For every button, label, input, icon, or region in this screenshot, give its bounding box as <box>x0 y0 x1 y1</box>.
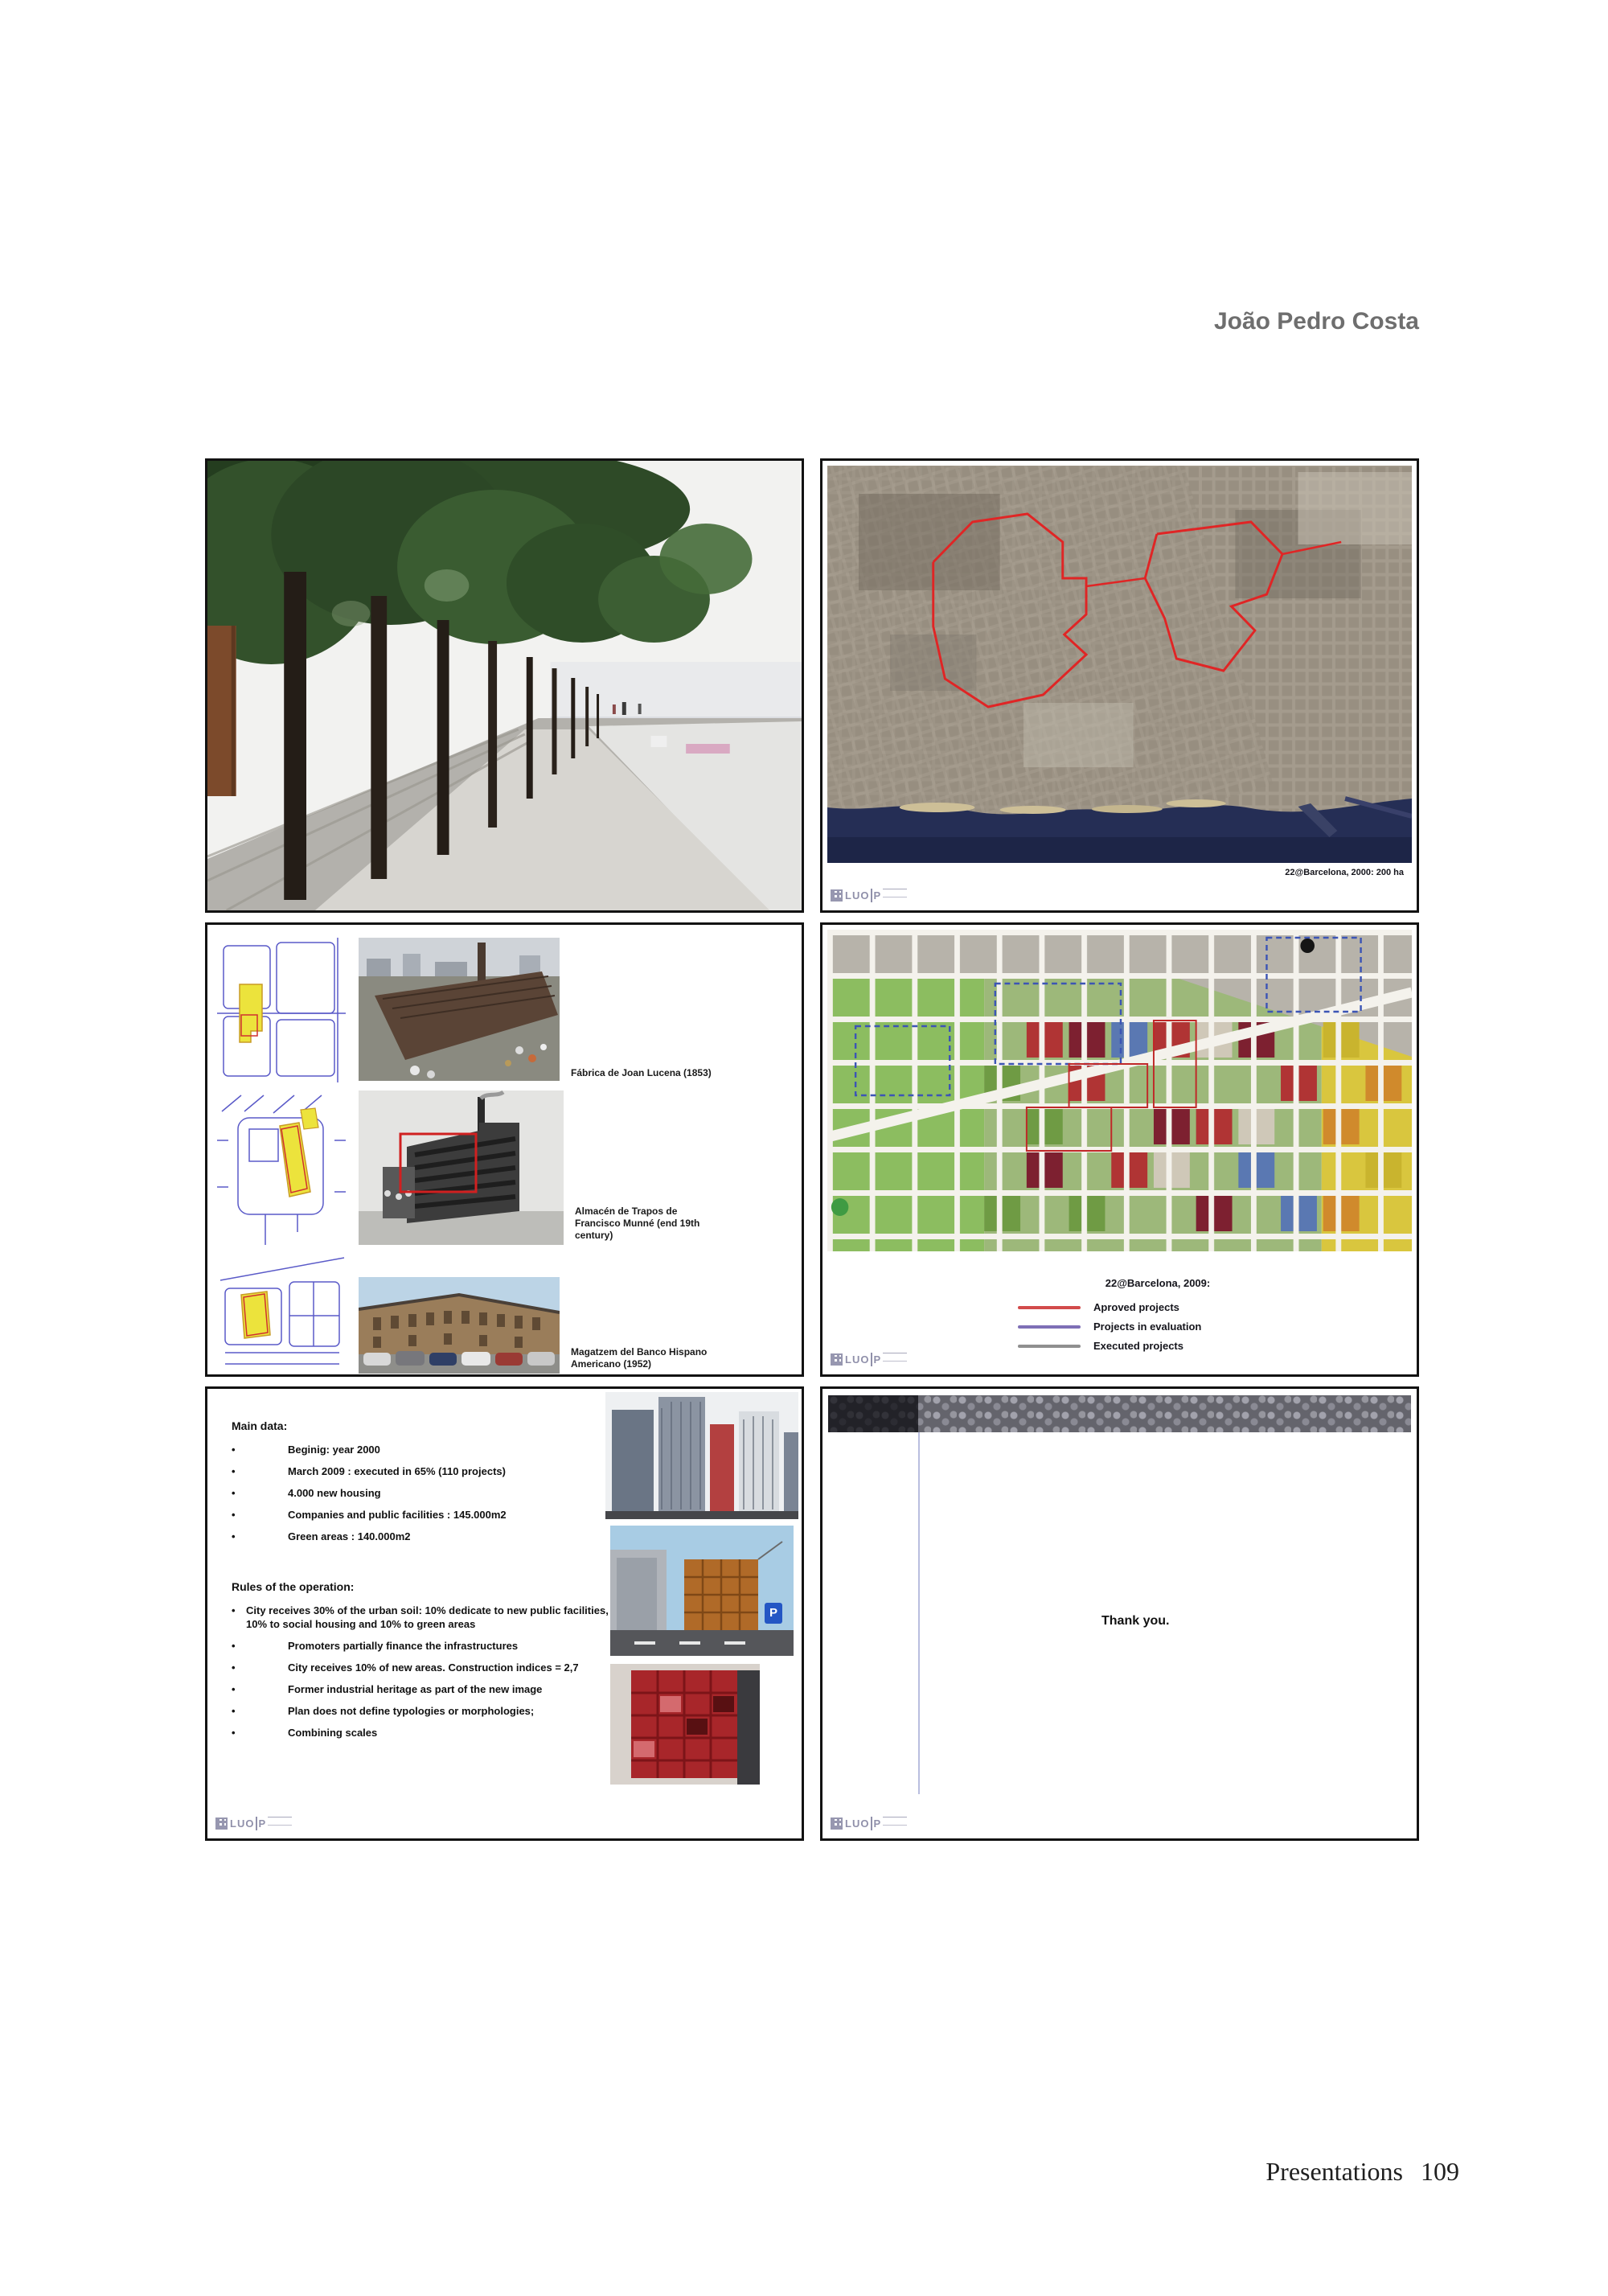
luop-logo-lines <box>883 1817 907 1826</box>
legend-swatch <box>1018 1325 1081 1329</box>
promenade-photo <box>207 461 802 910</box>
factory-photo <box>359 938 560 1082</box>
cobblestone-shadow <box>828 1395 918 1432</box>
luop-logo-suffix: P <box>873 889 881 902</box>
slide-satellite: 22@Barcelona, 2000: 200 ha LUO P <box>820 458 1419 913</box>
legend-item: Executed projects <box>1018 1340 1201 1352</box>
cadastral-map <box>217 1090 346 1245</box>
luop-logo-bar <box>256 1817 257 1830</box>
luop-logo-suffix: P <box>873 1353 881 1366</box>
heritage-row: Fábrica de Joan Lucena (1853) <box>217 938 792 1082</box>
street-photos: P <box>601 1389 802 1838</box>
legend-swatch <box>1018 1306 1081 1309</box>
red-facade-photo <box>610 1664 760 1785</box>
luop-logo-lines <box>883 1353 907 1362</box>
legend-item: Projects in evaluation <box>1018 1321 1201 1333</box>
luop-logo-icon <box>831 889 843 902</box>
luop-logo: LUO P <box>831 1817 907 1830</box>
bullet-item: • Beginig: year 2000 <box>232 1444 613 1457</box>
luop-logo-text: LUO <box>230 1817 254 1830</box>
slide-main-data: Main data: • Beginig: year 2000 • March … <box>205 1386 804 1841</box>
bullet-item: • City receives 10% of new areas. Constr… <box>232 1661 613 1675</box>
luop-logo-suffix: P <box>258 1817 266 1830</box>
luop-logo-lines <box>883 889 907 897</box>
slide-plan: 22@Barcelona, 2009: Aproved projects Pro… <box>820 922 1419 1377</box>
luop-logo-icon <box>831 1353 843 1366</box>
old-factory-photo <box>359 1090 564 1245</box>
bullet-item: • 4.000 new housing <box>232 1487 613 1501</box>
heritage-row: Magatzem del Banco Hispano Americano (19… <box>217 1253 792 1374</box>
footer-section-label: Presentations <box>1265 2157 1403 2186</box>
bullet-item: • Former industrial heritage as part of … <box>232 1683 613 1697</box>
luop-logo: LUO P <box>215 1817 292 1830</box>
bullet-item: • Companies and public facilities : 145.… <box>232 1509 613 1522</box>
main-data-text: Main data: • Beginig: year 2000 • March … <box>232 1389 613 1748</box>
divider-line <box>918 1432 920 1794</box>
cobblestone-photo <box>828 1395 1411 1432</box>
plan-legend: Aproved projects Projects in evaluation … <box>1018 1301 1201 1359</box>
luop-logo-bar <box>871 1353 872 1366</box>
luop-logo-text: LUO <box>845 889 869 902</box>
luop-logo-suffix: P <box>873 1817 881 1830</box>
luop-logo: LUO P <box>831 889 907 902</box>
plan-map <box>827 930 1412 1251</box>
luop-logo-bar <box>871 889 872 902</box>
bullet-item: • Promoters partially finance the infras… <box>232 1640 613 1653</box>
heritage-caption: Almacén de Trapos de Francisco Munné (en… <box>575 1206 720 1242</box>
cube-building-photo: P <box>610 1526 794 1656</box>
luop-logo-icon <box>831 1817 843 1830</box>
bullet-item: • Combining scales <box>232 1727 613 1740</box>
luop-logo-text: LUO <box>845 1353 869 1366</box>
heritage-rows: Fábrica de Joan Lucena (1853) <box>207 925 802 1374</box>
satellite-photo <box>827 466 1412 863</box>
warehouse-photo <box>359 1277 560 1374</box>
cadastral-map <box>217 1253 346 1374</box>
luop-logo-icon <box>215 1817 228 1830</box>
slide-grid: 22@Barcelona, 2000: 200 ha LUO P <box>205 458 1419 1841</box>
bullet-item: • Plan does not define typologies or mor… <box>232 1705 613 1719</box>
bullet-item: • City receives 30% of the urban soil: 1… <box>232 1604 613 1632</box>
slide-promenade <box>205 458 804 913</box>
cadastral-map <box>217 938 346 1082</box>
bullet-item: • March 2009 : executed in 65% (110 proj… <box>232 1465 613 1479</box>
author-name: João Pedro Costa <box>1214 308 1419 335</box>
thank-you-text: Thank you. <box>1101 1614 1169 1629</box>
legend-item: Aproved projects <box>1018 1301 1201 1313</box>
plan-title: 22@Barcelona, 2009: <box>899 1277 1417 1289</box>
rules-heading: Rules of the operation: <box>232 1580 613 1593</box>
main-data-heading: Main data: <box>232 1419 613 1432</box>
heritage-row: Almacén de Trapos de Francisco Munné (en… <box>217 1090 792 1245</box>
bullet-item: • Green areas : 140.000m2 <box>232 1530 613 1544</box>
heritage-caption: Magatzem del Banco Hispano Americano (19… <box>571 1346 716 1370</box>
slide-thanks: Thank you. LUO P <box>820 1386 1419 1841</box>
parking-sign: P <box>765 1603 782 1624</box>
satellite-caption: 22@Barcelona, 2000: 200 ha <box>1285 868 1404 877</box>
legend-swatch <box>1018 1345 1081 1348</box>
luop-logo-text: LUO <box>845 1817 869 1830</box>
luop-logo-lines <box>268 1817 292 1826</box>
page-footer: Presentations109 <box>1265 2157 1459 2187</box>
proceedings-page: João Pedro Costa <box>0 0 1608 2296</box>
luop-logo: LUO P <box>831 1353 907 1366</box>
luop-logo-bar <box>871 1817 872 1830</box>
footer-page-number: 109 <box>1421 2157 1459 2186</box>
towers-photo <box>605 1392 798 1519</box>
heritage-caption: Fábrica de Joan Lucena (1853) <box>571 1067 716 1079</box>
slide-heritage: Fábrica de Joan Lucena (1853) <box>205 922 804 1377</box>
